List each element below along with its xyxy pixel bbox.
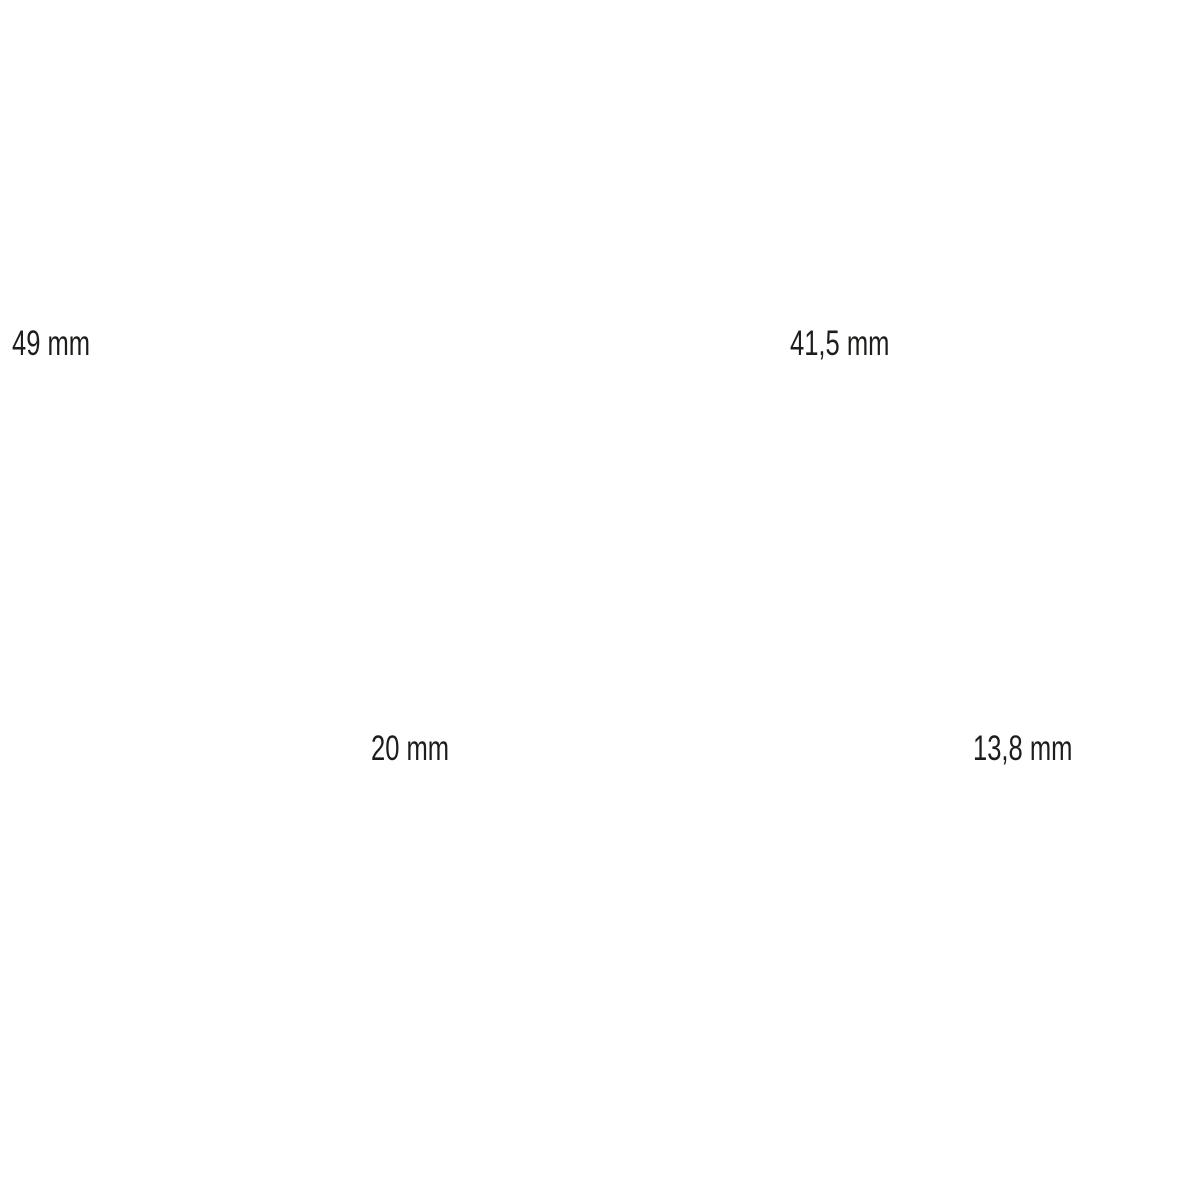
- dimension-label-bottom-right: 13,8 mm: [973, 731, 1072, 766]
- dimension-label-top-left: 49 mm: [12, 326, 90, 361]
- dimension-diagram-canvas: 49 mm 41,5 mm 20 mm 13,8 mm: [0, 0, 1200, 1189]
- dimension-label-bottom-center: 20 mm: [371, 731, 449, 766]
- dimension-label-top-right: 41,5 mm: [790, 326, 889, 361]
